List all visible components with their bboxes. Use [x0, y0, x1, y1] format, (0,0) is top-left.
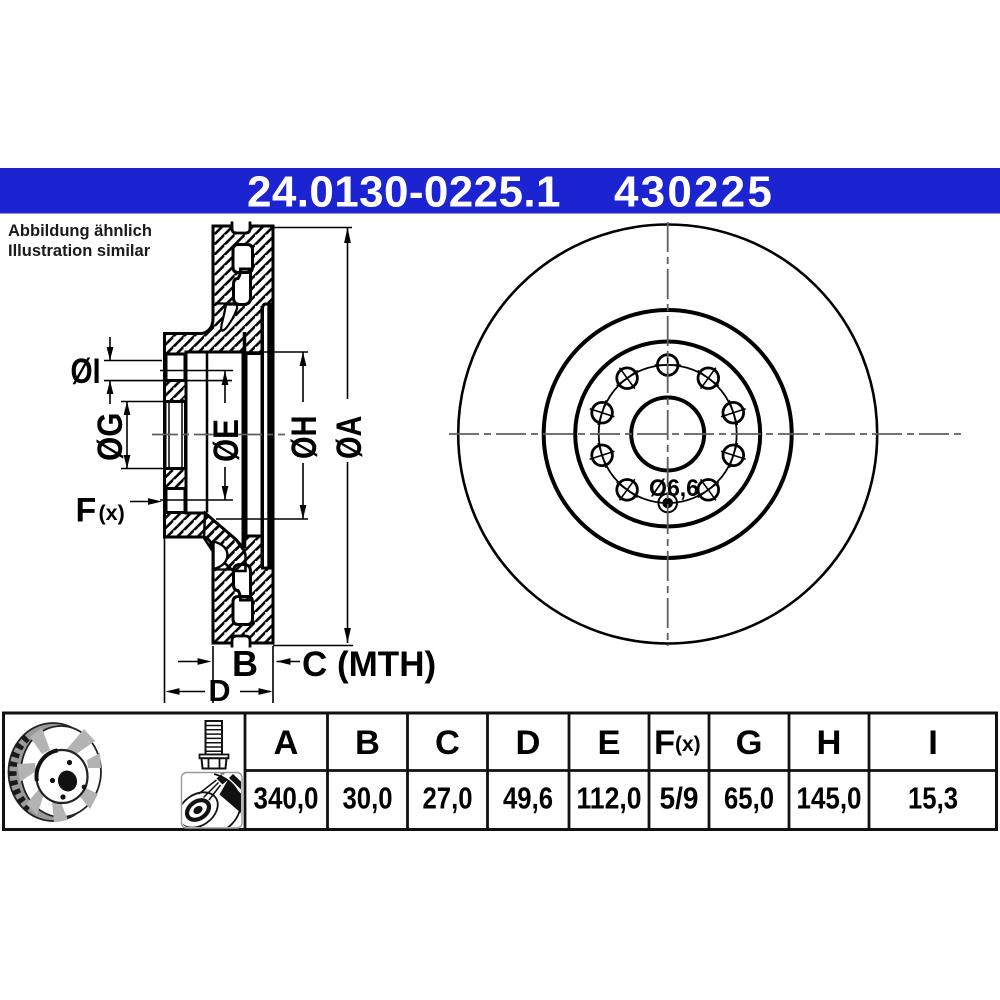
svg-text:G: G: [736, 724, 763, 762]
svg-text:I: I: [928, 724, 938, 762]
svg-text:A: A: [274, 724, 299, 762]
svg-text:ØH: ØH: [284, 416, 324, 460]
svg-text:49,6: 49,6: [503, 781, 553, 816]
svg-text:Abbildung ähnlich: Abbildung ähnlich: [8, 222, 152, 240]
svg-text:(x): (x): [99, 501, 125, 525]
svg-text:430225: 430225: [614, 168, 774, 217]
svg-text:F: F: [654, 724, 675, 762]
svg-text:112,0: 112,0: [577, 781, 642, 816]
svg-text:Ø6,6: Ø6,6: [649, 475, 699, 502]
svg-text:65,0: 65,0: [724, 781, 774, 816]
svg-text:Illustration similar: Illustration similar: [8, 242, 151, 260]
svg-text:ØG: ØG: [90, 413, 130, 462]
svg-text:ØE: ØE: [206, 419, 246, 462]
svg-text:24.0130-0225.1: 24.0130-0225.1: [247, 168, 561, 217]
svg-text:C (MTH): C (MTH): [302, 645, 436, 684]
svg-text:27,0: 27,0: [423, 781, 473, 816]
svg-text:ØI: ØI: [71, 351, 101, 391]
svg-text:B: B: [355, 724, 380, 762]
svg-text:C: C: [435, 724, 460, 762]
svg-text:ØA: ØA: [329, 416, 369, 460]
svg-text:D: D: [209, 674, 231, 708]
svg-text:145,0: 145,0: [797, 781, 862, 816]
svg-text:B: B: [232, 643, 258, 684]
svg-text:F: F: [76, 492, 97, 530]
svg-text:H: H: [817, 724, 842, 762]
svg-text:5/9: 5/9: [660, 781, 699, 816]
svg-text:D: D: [516, 724, 541, 762]
svg-text:(x): (x): [675, 733, 701, 756]
svg-text:15,3: 15,3: [908, 781, 958, 816]
svg-text:E: E: [597, 724, 620, 762]
svg-text:340,0: 340,0: [254, 781, 319, 816]
svg-text:30,0: 30,0: [343, 781, 393, 816]
